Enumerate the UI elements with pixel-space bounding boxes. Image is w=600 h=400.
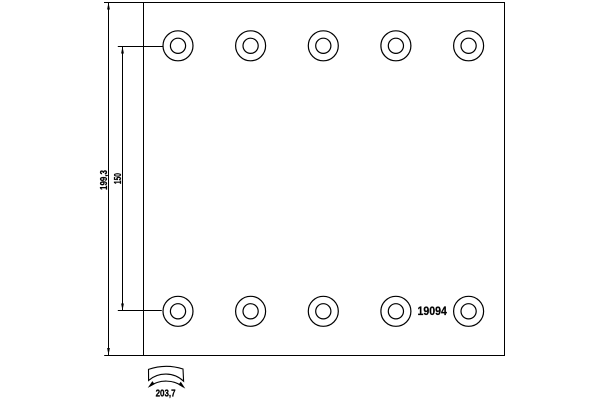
svg-text:199,3: 199,3 (99, 170, 110, 190)
svg-text:150: 150 (113, 173, 124, 184)
svg-text:203,7: 203,7 (156, 388, 176, 399)
svg-text:19094: 19094 (418, 304, 448, 318)
